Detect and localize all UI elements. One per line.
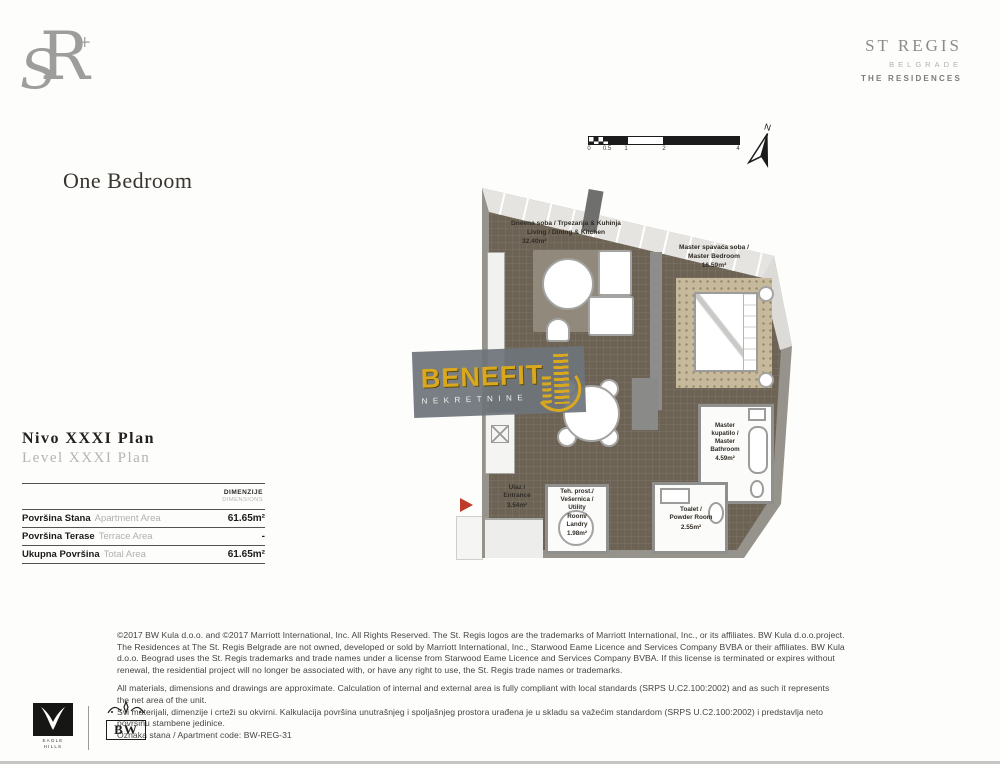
- table-header: DIMENZIJE DIMENSIONS: [22, 484, 265, 509]
- monogram-accent: +: [78, 32, 91, 51]
- kitchen-sink: [491, 425, 509, 443]
- row-value: 61.65m²: [228, 549, 265, 560]
- building-tower: [553, 354, 570, 404]
- scale-segment-black-long: [664, 137, 739, 144]
- hills-word: HILLS: [30, 744, 76, 750]
- bed: [694, 292, 758, 372]
- watermark-subtitle: NEKRETNINE: [421, 392, 544, 405]
- tick-0: 0: [587, 146, 590, 152]
- logo-divider: [88, 706, 89, 750]
- row-label-sr: Površina Terase: [22, 531, 95, 542]
- disclaimer-line: površinu stambene jedinice.: [117, 718, 993, 730]
- scale-bar: 0 0.5 1 2 4: [588, 136, 740, 156]
- north-label: N: [763, 122, 772, 133]
- level-heading-en: Level XXXI Plan: [22, 450, 265, 467]
- row-labels: Površina StanaApartment Area: [22, 513, 161, 524]
- disclaimer-line: All materials, dimensions and drawings a…: [117, 683, 993, 695]
- apartment-code-line: Oznaka stana / Apartment code: BW-REG-31: [117, 730, 993, 742]
- eagle-hills-logo: EAGLE HILLS: [30, 703, 76, 751]
- bw-wordmark: BW: [106, 720, 146, 740]
- entrance-area: 3.54m²: [492, 502, 542, 510]
- brand-name: ST REGIS: [861, 36, 962, 56]
- bedroom-name: Master spavaća soba / Master Bedroom: [656, 244, 772, 261]
- disclaimer-line: ©2017 BW Kula d.o.o. and ©2017 Marriott …: [117, 630, 993, 642]
- bathtub: [748, 426, 768, 474]
- dimensions-table: DIMENZIJE DIMENSIONS Površina StanaApart…: [22, 483, 265, 564]
- label-entrance: Ulaz / Entrance 3.54m²: [492, 484, 542, 510]
- label-toilet: Toalet / Powder Room 2.55m²: [656, 506, 726, 532]
- elevator-shaft: [456, 516, 483, 560]
- entrance-name: Ulaz / Entrance: [492, 484, 542, 501]
- table-row: Površina StanaApartment Area 61.65m²: [22, 509, 265, 527]
- benefit-watermark: BENEFIT NEKRETNINE: [412, 346, 586, 418]
- lounge-chair: [542, 258, 594, 310]
- toilet-name: Toalet / Powder Room: [656, 506, 726, 523]
- scale-segment-white: [627, 137, 665, 144]
- row-labels: Ukupna PovršinaTotal Area: [22, 549, 146, 560]
- bathroom-area: 4.59m²: [702, 455, 748, 463]
- tick-4: 4: [736, 146, 739, 152]
- row-label-sr: Ukupna Površina: [22, 549, 100, 560]
- label-bathroom: Master kupatilo / Master Bathroom 4.59m²: [702, 422, 748, 463]
- tick-1: 1: [624, 146, 627, 152]
- st-regis-monogram-icon: S R +: [18, 22, 108, 122]
- sofa-chaise: [598, 250, 632, 296]
- row-label-en: Total Area: [104, 549, 146, 560]
- scale-bar-segments: [588, 136, 740, 145]
- floor-plan-sheet: S R + ST REGIS BELGRADE THE RESIDENCES O…: [0, 0, 1000, 764]
- tick-05: 0.5: [603, 146, 611, 152]
- nightstand: [758, 286, 774, 302]
- row-label-sr: Površina Stana: [22, 513, 91, 524]
- dimensions-panel: Nivo XXXI Plan Level XXXI Plan DIMENZIJE…: [22, 430, 265, 564]
- row-value: 61.65m²: [228, 513, 265, 524]
- eagle-hills-icon: [33, 703, 73, 736]
- building-icon: [543, 351, 578, 408]
- belgrade-waterfront-logo: BW: [100, 701, 152, 740]
- bathroom-name: Master kupatilo / Master Bathroom: [702, 422, 748, 454]
- table-row: Površina TeraseTerrace Area -: [22, 527, 265, 545]
- living-area: 32.40m²: [486, 238, 646, 247]
- tick-2: 2: [662, 146, 665, 152]
- powder-room-sink: [660, 488, 690, 504]
- toilet-area: 2.55m²: [656, 524, 726, 532]
- sofa: [588, 296, 634, 336]
- disclaimer-line: the net area of the unit.: [117, 695, 993, 707]
- table-header-sr: DIMENZIJE: [24, 489, 263, 496]
- label-bedroom: Master spavaća soba / Master Bedroom 16.…: [656, 244, 772, 271]
- disclaimer-line: renewal, the residential project will no…: [117, 665, 993, 677]
- watermark-title: BENEFIT: [420, 359, 544, 394]
- scale-segment-checker: [589, 137, 608, 144]
- label-living: Dnevna soba / Trpezarija & Kuhinja Livin…: [486, 220, 646, 247]
- tv-wardrobe: [632, 378, 658, 430]
- bedroom-area: 16.59m²: [656, 262, 772, 271]
- scale-bar-ticks: 0 0.5 1 2 4: [588, 146, 740, 156]
- row-value: -: [262, 531, 265, 542]
- row-label-en: Apartment Area: [95, 513, 161, 524]
- level-heading-sr: Nivo XXXI Plan: [22, 430, 265, 448]
- bathroom-sink: [748, 408, 766, 421]
- bw-crown-icon: [106, 701, 146, 715]
- row-labels: Površina TeraseTerrace Area: [22, 531, 153, 542]
- utility-area: 1.98m²: [548, 530, 606, 538]
- watermark-text: BENEFIT NEKRETNINE: [420, 359, 544, 405]
- building-tower-small: [542, 376, 552, 404]
- north-arrow-icon: N: [746, 120, 782, 177]
- entrance-arrow-icon: [460, 498, 473, 512]
- utility-name: Teh. prost./ Vešernica / Utility Room/ L…: [548, 488, 606, 529]
- nightstand: [758, 372, 774, 388]
- armchair: [546, 318, 570, 342]
- entry-door-area: [485, 518, 543, 558]
- brand-residences: THE RESIDENCES: [861, 74, 962, 83]
- label-utility: Teh. prost./ Vešernica / Utility Room/ L…: [548, 488, 606, 538]
- bathroom-toilet: [750, 480, 764, 498]
- bed-pillows: [743, 294, 756, 370]
- brand-city: BELGRADE: [861, 60, 962, 69]
- disclaimer-line: The Residences at The St. Regis Belgrade…: [117, 642, 993, 654]
- brand-block: ST REGIS BELGRADE THE RESIDENCES: [861, 36, 962, 83]
- kitchen-counter: [485, 412, 515, 474]
- eagle-hills-wordmark: EAGLE HILLS: [30, 738, 76, 751]
- table-row: Ukupna PovršinaTotal Area 61.65m²: [22, 545, 265, 563]
- living-name: Dnevna soba / Trpezarija & Kuhinja Livin…: [486, 220, 646, 237]
- table-header-en: DIMENSIONS: [24, 497, 263, 503]
- page-title: One Bedroom: [63, 168, 193, 194]
- legal-disclaimer: ©2017 BW Kula d.o.o. and ©2017 Marriott …: [117, 630, 993, 741]
- scale-segment-black: [608, 137, 627, 144]
- disclaimer-line: Svi materijali, dimenzije i crteži su ok…: [117, 707, 993, 719]
- monogram-letter-r: R: [40, 18, 90, 95]
- disclaimer-line: d.o.o. Beograd uses the St. Regis tradem…: [117, 653, 993, 665]
- row-label-en: Terrace Area: [99, 531, 153, 542]
